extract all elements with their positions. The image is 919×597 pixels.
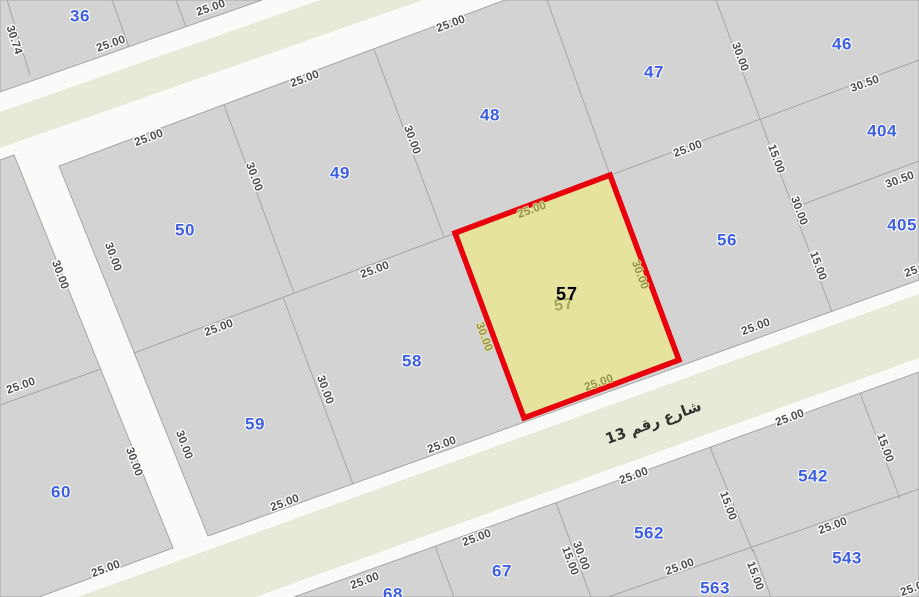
parcel-57-number[interactable]: 57: [556, 284, 578, 304]
parcel-number-50[interactable]: 50: [175, 221, 195, 240]
parcel-number-562[interactable]: 562: [634, 524, 664, 543]
parcel-number-543[interactable]: 543: [832, 549, 862, 568]
parcel-number-68[interactable]: 68: [383, 585, 403, 597]
parcel-number-48[interactable]: 48: [480, 106, 500, 125]
parcel-number-59[interactable]: 59: [245, 415, 265, 434]
parcel-number-49[interactable]: 49: [330, 164, 350, 183]
map-canvas[interactable]: 30.7425.0025.0025.0025.0025.0030.0030.00…: [0, 0, 919, 597]
parcel-number-67[interactable]: 67: [492, 562, 512, 581]
parcel-number-563[interactable]: 563: [700, 579, 730, 597]
parcel-number-58[interactable]: 58: [402, 352, 422, 371]
parcel-number-36[interactable]: 36: [70, 7, 90, 26]
parcel-number-56[interactable]: 56: [717, 231, 737, 250]
parcel-number-46[interactable]: 46: [832, 35, 852, 54]
parcel-number-405[interactable]: 405: [887, 216, 917, 235]
parcel-number-47[interactable]: 47: [644, 63, 664, 82]
parcel-number-60[interactable]: 60: [51, 483, 71, 502]
parcel-number-404[interactable]: 404: [867, 122, 897, 141]
parcel-number-542[interactable]: 542: [798, 467, 828, 486]
cadastral-map: 30.7425.0025.0025.0025.0025.0030.0030.00…: [0, 0, 919, 597]
